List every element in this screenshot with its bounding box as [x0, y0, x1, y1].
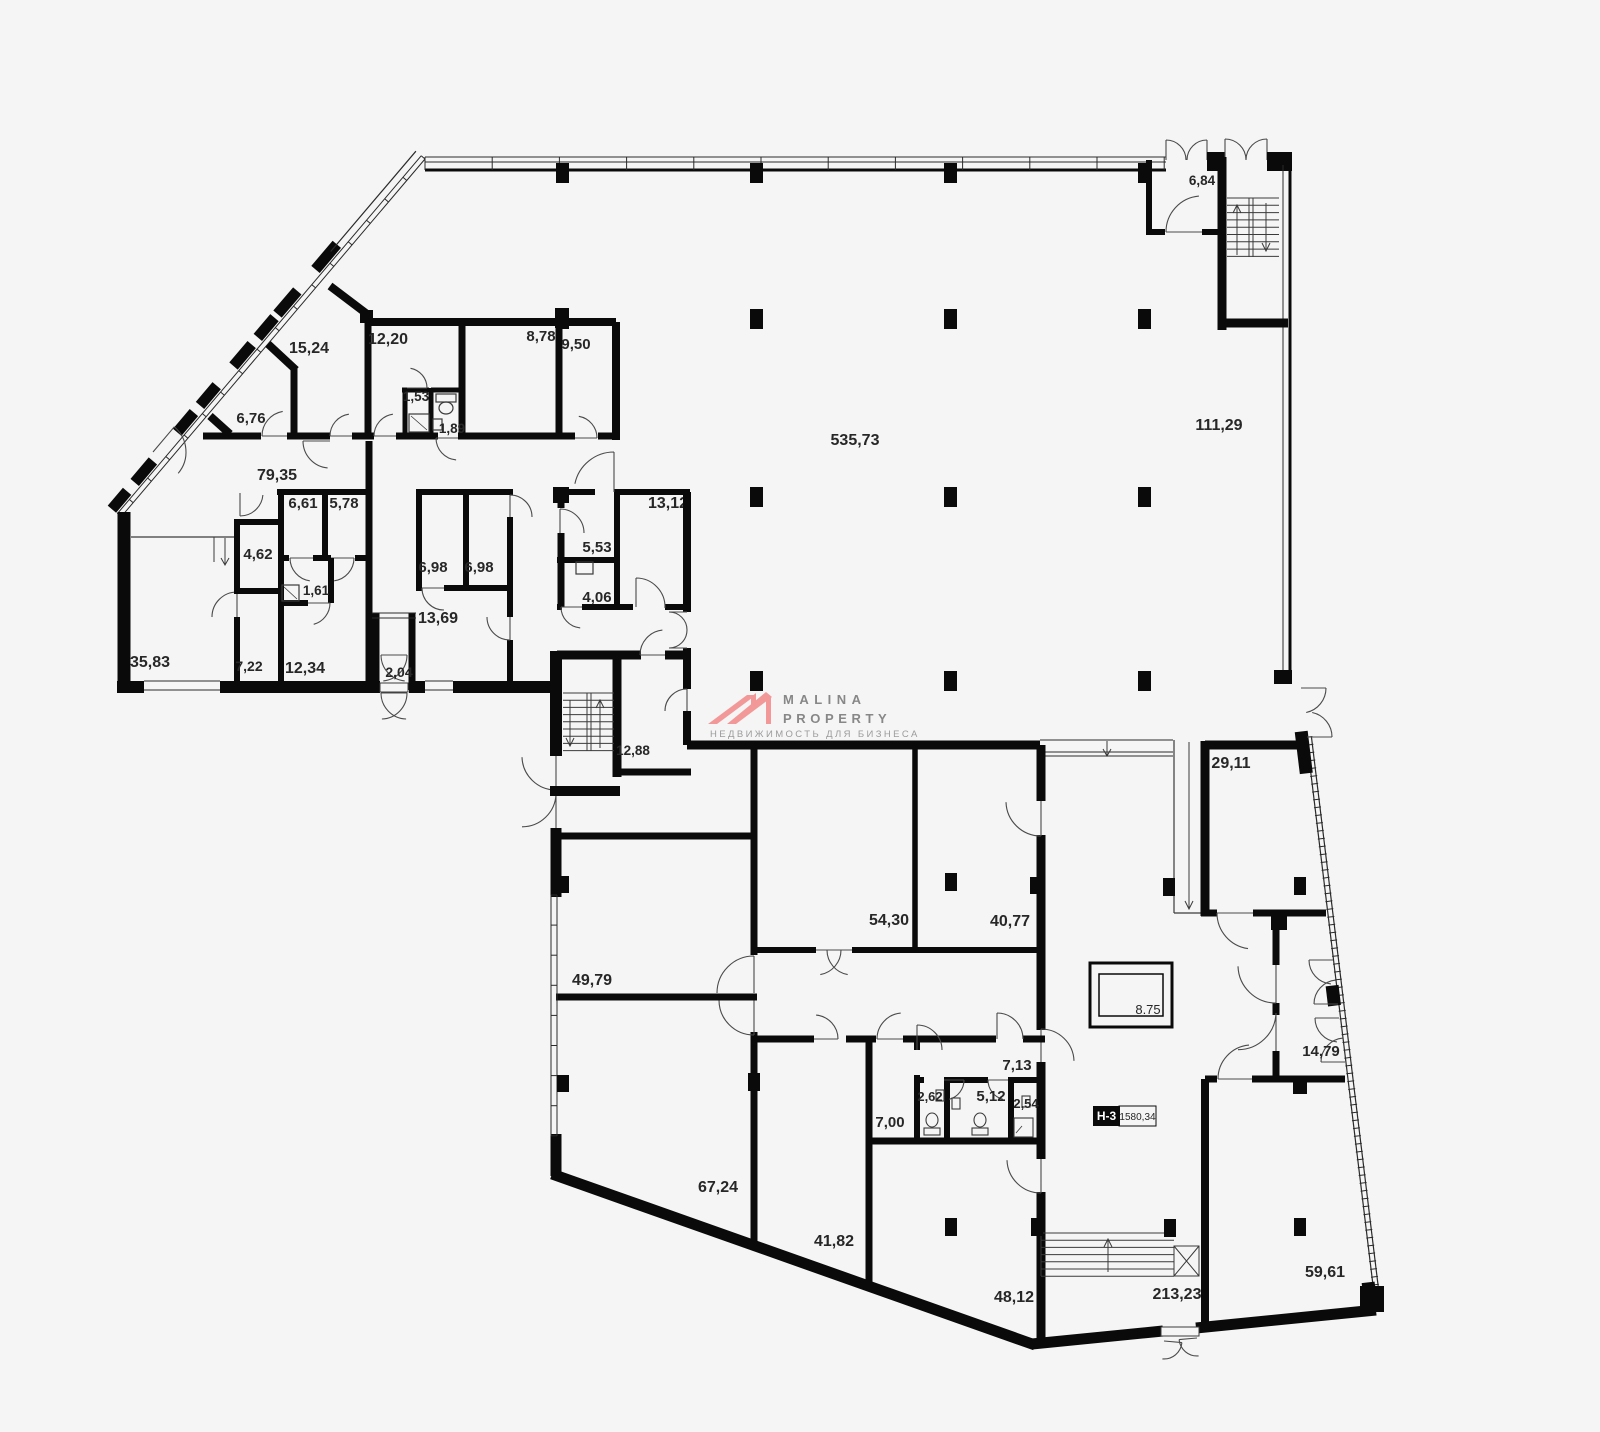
svg-text:2,54: 2,54	[1013, 1096, 1039, 1111]
svg-text:54,30: 54,30	[869, 912, 909, 929]
svg-text:6,98: 6,98	[418, 559, 447, 576]
svg-text:35,83: 35,83	[130, 654, 170, 671]
svg-text:12,88: 12,88	[616, 743, 650, 758]
svg-text:MALINA: MALINA	[783, 692, 867, 707]
svg-text:7,00: 7,00	[875, 1114, 904, 1131]
svg-text:1,53: 1,53	[403, 389, 430, 404]
svg-text:79,35: 79,35	[257, 467, 297, 484]
svg-text:12,20: 12,20	[368, 331, 408, 348]
svg-text:8.75: 8.75	[1135, 1002, 1160, 1017]
svg-text:Н-3: Н-3	[1097, 1109, 1117, 1123]
svg-text:4,06: 4,06	[582, 589, 611, 606]
svg-text:535,73: 535,73	[831, 432, 880, 449]
svg-text:7,13: 7,13	[1002, 1057, 1031, 1074]
svg-text:111,29: 111,29	[1195, 417, 1242, 434]
svg-text:12,34: 12,34	[285, 660, 325, 677]
svg-text:1,89: 1,89	[439, 421, 465, 436]
svg-text:PROPERTY: PROPERTY	[783, 711, 891, 726]
svg-text:59,61: 59,61	[1305, 1264, 1345, 1281]
svg-text:5,53: 5,53	[582, 539, 611, 556]
svg-text:4,62: 4,62	[243, 546, 272, 563]
svg-text:40,77: 40,77	[990, 913, 1030, 930]
svg-text:29,11: 29,11	[1211, 755, 1250, 772]
svg-text:13,69: 13,69	[418, 610, 458, 627]
svg-text:5,12: 5,12	[976, 1088, 1005, 1105]
svg-text:67,24: 67,24	[698, 1179, 738, 1196]
svg-text:14,79: 14,79	[1302, 1043, 1340, 1060]
svg-text:5,78: 5,78	[329, 495, 358, 512]
svg-text:6,98: 6,98	[464, 559, 493, 576]
svg-text:6,84: 6,84	[1189, 173, 1216, 188]
svg-text:2,62: 2,62	[917, 1089, 942, 1104]
svg-text:1,61: 1,61	[303, 583, 330, 598]
svg-text:9,50: 9,50	[561, 336, 590, 353]
svg-text:6,76: 6,76	[236, 410, 265, 427]
svg-text:6,61: 6,61	[288, 495, 317, 512]
svg-text:8,78: 8,78	[526, 328, 555, 345]
svg-text:15,24: 15,24	[289, 340, 329, 357]
svg-text:7,22: 7,22	[235, 658, 262, 674]
svg-text:НЕДВИЖИМОСТЬ ДЛЯ БИЗНЕСА: НЕДВИЖИМОСТЬ ДЛЯ БИЗНЕСА	[710, 729, 920, 740]
svg-text:213,23: 213,23	[1153, 1286, 1202, 1303]
svg-text:1580,34: 1580,34	[1119, 1112, 1156, 1123]
svg-text:48,12: 48,12	[994, 1289, 1034, 1306]
svg-text:41,82: 41,82	[814, 1233, 854, 1250]
svg-text:13,12: 13,12	[648, 495, 688, 512]
svg-text:2,04: 2,04	[385, 664, 412, 680]
svg-text:49,79: 49,79	[572, 972, 612, 989]
